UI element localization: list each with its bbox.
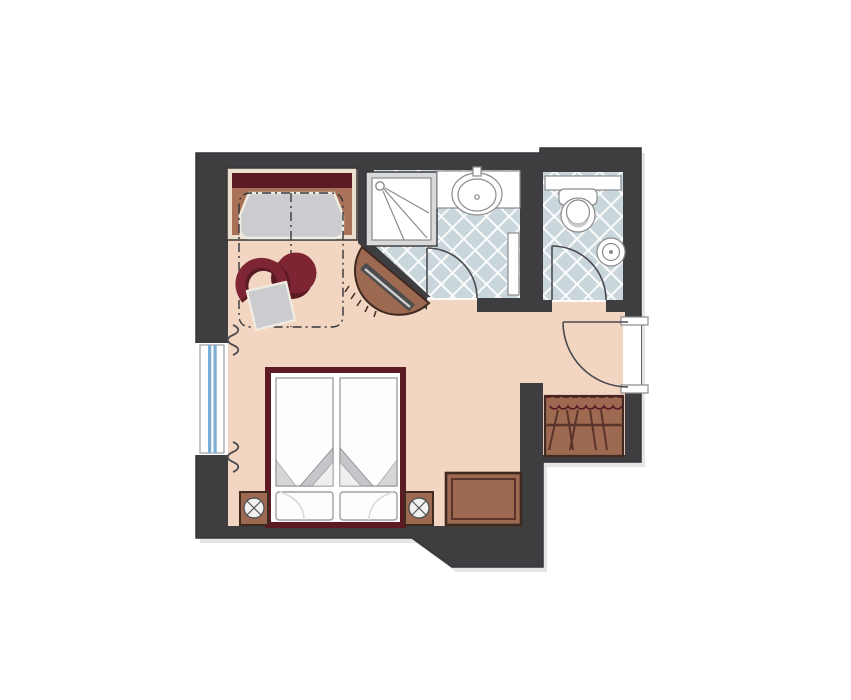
pillow-left (276, 492, 333, 520)
bathroom-door-threshold (427, 298, 477, 312)
wardrobe (545, 396, 623, 456)
window (195, 343, 228, 455)
faucet (473, 167, 481, 176)
double-bed (268, 370, 403, 525)
daybed-sofa (227, 168, 357, 240)
wc-shelf (545, 176, 621, 190)
partition-hall-closet (520, 383, 543, 526)
towel-radiator (508, 233, 519, 295)
vanity-sink (437, 167, 520, 215)
luggage-bench (446, 473, 521, 525)
toilet (559, 189, 597, 232)
window-glazing (208, 345, 211, 453)
daybed-headboard (232, 173, 352, 188)
shower (366, 172, 437, 246)
nightstand-right (405, 492, 433, 525)
nightstand-left (240, 492, 268, 525)
floorplan-svg (0, 0, 851, 700)
floorplan-canvas (0, 0, 851, 700)
wc-hand-basin (597, 238, 625, 266)
shower-head (376, 182, 384, 190)
pillow-right (340, 492, 397, 520)
armchair-seat (247, 282, 295, 330)
